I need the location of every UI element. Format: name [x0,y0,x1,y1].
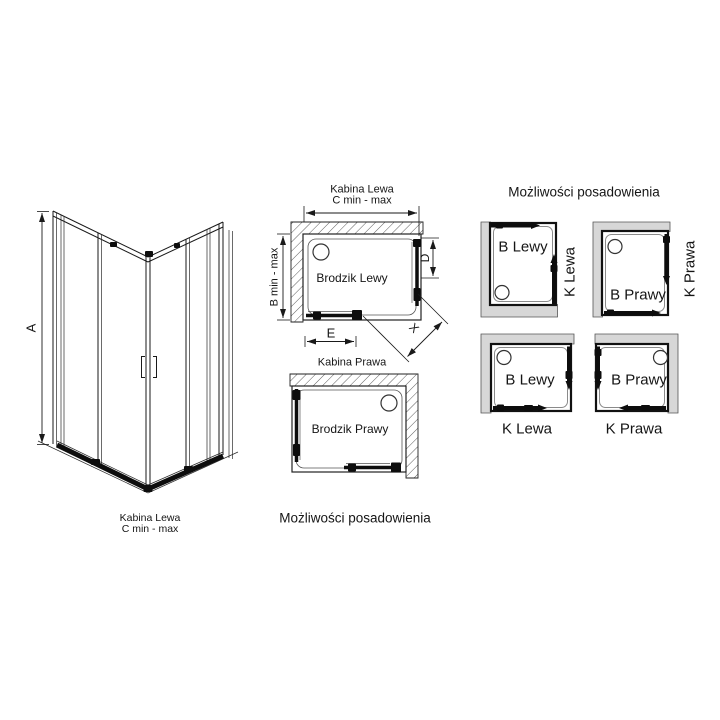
dim-e-label: E [327,327,336,340]
placement-4-tray-label: B Prawy [611,373,667,388]
placement-4-cabin-label: K Prawa [606,422,663,437]
plan-lewa-width-range: C min - max [332,196,391,207]
view3d-caption-title: Kabina Lewa [120,513,181,524]
plan-prawa-title: Kabina Prawa [318,358,387,369]
placement-2-tray-label: B Prawy [610,288,666,303]
placement-1-tray-label: B Lewy [498,240,547,255]
cabin-3d-view [38,211,238,493]
placement-3-tray-label: B Lewy [505,373,554,388]
view3d-caption-range: C min - max [122,524,179,535]
dim-a-label: A [25,324,38,333]
placement-caption-mid: Możliwości posadowienia [279,511,431,525]
technical-drawing-canvas: A Kabina Lewa C min - max Kabina Lewa C … [0,0,720,720]
dim-d-label: D [419,254,431,263]
dimension-a [37,212,49,445]
placement-1-cabin-label: K Lewa [563,247,578,297]
placement-3-cabin-label: K Lewa [502,422,552,437]
door-handles [142,357,157,378]
plan-prawa-tray-label: Brodzik Prawy [312,423,389,435]
plan-lewa-tray-label: Brodzik Lewy [316,272,387,284]
plan-lewa-depth-range: B min - max [270,248,281,307]
placement-diagram-1 [481,222,558,317]
placement-2-cabin-label: K Prawa [683,241,698,298]
placement-group-title: Możliwości posadowienia [508,185,660,199]
